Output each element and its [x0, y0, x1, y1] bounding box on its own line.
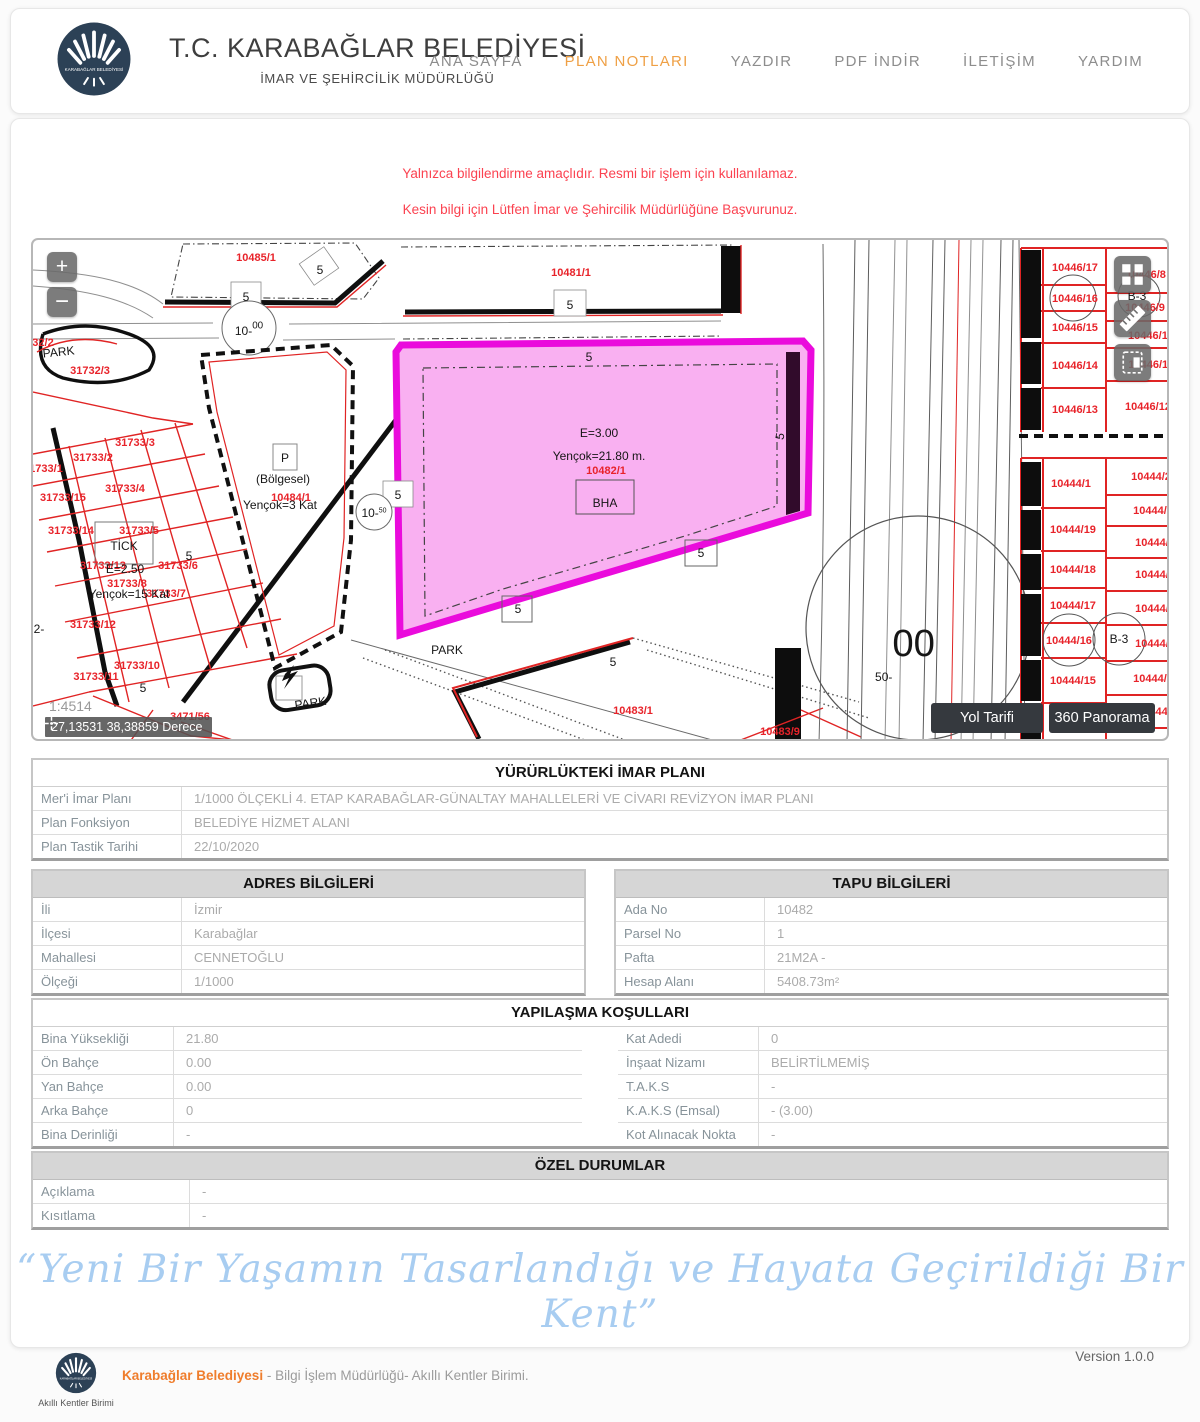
map-label: BHA: [593, 496, 618, 510]
table-row: Hesap Alanı5408.73m²: [616, 970, 1167, 993]
table-row: Ölçeği1/1000: [33, 970, 584, 993]
deed-table-title: TAPU BİLGİLERİ: [616, 871, 1167, 898]
map-label: 5: [186, 549, 193, 563]
zoning-conditions-right: Kat Adedi0 İnşaat NizamıBELİRTİLMEMİŞ T.…: [618, 1027, 1167, 1146]
map-legend-button[interactable]: [1114, 344, 1151, 381]
crosshair-icon: [45, 717, 58, 730]
map-label: 5: [243, 290, 250, 304]
footer-org-rest: - Bilgi İşlem Müdürlüğü- Akıllı Kentler …: [263, 1368, 529, 1383]
table-row: Arka Bahçe0: [33, 1099, 582, 1123]
map-parcel-label: 31733/3: [115, 437, 155, 449]
ruler-icon: [1114, 300, 1151, 337]
map-label: E=3.00: [580, 426, 619, 440]
map-zoom-out-button[interactable]: −: [47, 287, 77, 317]
map-parcel-label: 10446/13: [1052, 404, 1098, 416]
deed-table: TAPU BİLGİLERİ Ada No10482 Parsel No1 Pa…: [614, 869, 1169, 996]
map-parcel-label: 10444/17: [1050, 600, 1096, 612]
main-nav: ANA SAYFA PLAN NOTLARI YAZDIR PDF İNDİR …: [430, 53, 1143, 70]
table-row: Mer'i İmar Planı1/1000 ÖLÇEKLİ 4. ETAP K…: [33, 787, 1167, 811]
map-parcel-label: 10444/8: [1133, 673, 1169, 685]
table-row: Kısıtlama-: [33, 1204, 1167, 1227]
map-parcel-label: 10444/15: [1050, 675, 1096, 687]
map-label: 5: [586, 350, 593, 364]
map-label: TİCK: [110, 539, 137, 553]
map-label: Yençok=21.80 m.: [553, 449, 646, 463]
table-row: Açıklama-: [33, 1180, 1167, 1204]
page-subtitle: İMAR VE ŞEHİRCİLİK MÜDÜRLÜĞÜ: [169, 71, 586, 86]
table-row: Kat Adedi0: [618, 1027, 1167, 1051]
map-label: Yençok=3 Kat: [243, 498, 318, 512]
legend-panel-icon: [1114, 344, 1151, 381]
address-table-title: ADRES BİLGİLERİ: [33, 871, 584, 898]
special-conditions-table: ÖZEL DURUMLAR Açıklama- Kısıtlama-: [31, 1151, 1169, 1230]
table-row: Bina Derinliği-: [33, 1123, 582, 1146]
map-parcel-label: 10446/17: [1052, 262, 1098, 274]
warning-line-1: Yalnızca bilgilendirme amaçlıdır. Resmi …: [11, 166, 1189, 181]
table-row: Pafta21M2A -: [616, 946, 1167, 970]
map-parcel-label: 10444/19: [1050, 524, 1096, 536]
table-row: Bina Yüksekliği21.80: [33, 1027, 582, 1051]
table-row: Parsel No1: [616, 922, 1167, 946]
table-row: Kot Alınacak Nokta-: [618, 1123, 1167, 1146]
coordinate-bar: 27,13531 38,38859 Derece: [45, 717, 212, 737]
table-row: K.A.K.S (Emsal)- (3.00): [618, 1099, 1167, 1123]
table-row: İnşaat NizamıBELİRTİLMEMİŞ: [618, 1051, 1167, 1075]
map-parcel-label: 10485/1: [236, 252, 276, 264]
map-parcel-label: 10444/5: [1135, 569, 1169, 581]
map-parcel-label: 10446/14: [1052, 360, 1099, 372]
map-parcel-label: 10446/12: [1125, 401, 1169, 413]
map-label: P: [281, 451, 289, 465]
map-parcel-label: 31733/15: [40, 492, 86, 504]
map-parcel-label: 10444/6: [1135, 603, 1169, 615]
svg-text:KARABAĞLAR BELEDİYESİ: KARABAĞLAR BELEDİYESİ: [65, 66, 124, 72]
map-parcel-label: 10444/16: [1046, 635, 1092, 647]
map-parcel-label: 10444/4: [1135, 537, 1169, 549]
footer-logo: KARABAĞLAR BELEDİYESİ: [55, 1352, 97, 1394]
table-row: Ada No10482: [616, 898, 1167, 922]
map-parcel-label: 31733/2: [73, 452, 113, 464]
nav-item-yazdir[interactable]: YAZDIR: [731, 53, 793, 70]
map-label: E=2.50: [106, 562, 145, 576]
map-label: B-3: [1110, 632, 1129, 646]
nav-item-plan-notlari[interactable]: PLAN NOTLARI: [565, 53, 689, 70]
nav-item-pdf-indir[interactable]: PDF İNDİR: [834, 53, 921, 70]
plan-table-title: YÜRÜRLÜKTEKİ İMAR PLANI: [33, 760, 1167, 787]
map-label: 5: [317, 263, 324, 277]
city-slogan: “Yeni Bir Yaşamın Tasarlandığı ve Hayata…: [11, 1247, 1189, 1337]
map-label: 5: [567, 298, 574, 312]
table-row: Ön Bahçe0.00: [33, 1051, 582, 1075]
content-card: Yalnızca bilgilendirme amaçlıdır. Resmi …: [10, 118, 1190, 1348]
map-parcel-label: 31733/4: [105, 483, 146, 495]
map-parcel-label: 10446/15: [1052, 322, 1098, 334]
map-parcel-label: 1733/1: [33, 463, 63, 475]
map-label: 50-00: [875, 622, 935, 684]
map-measure-button[interactable]: [1114, 300, 1151, 337]
table-row: İlçesiKarabağlar: [33, 922, 584, 946]
map-parcel-label: 31733/10: [114, 660, 160, 672]
panorama-360-button[interactable]: 360 Panorama: [1049, 703, 1155, 733]
map-scale-label: 1:4514: [49, 698, 92, 714]
header-card: KARABAĞLAR BELEDİYESİ T.C. KARABAĞLAR BE…: [10, 8, 1190, 114]
map-parcel-label: 10444/2: [1131, 471, 1169, 483]
footer-unit-caption: Akıllı Kentler Birimi: [28, 1398, 124, 1408]
nav-item-ana-sayfa[interactable]: ANA SAYFA: [430, 53, 523, 70]
coordinate-readout: 27,13531 38,38859 Derece: [51, 720, 203, 734]
map-parcel-label: 10481/1: [551, 267, 591, 279]
map-label: 5: [140, 681, 147, 695]
map-parcel-label: 10483/9: [760, 726, 800, 738]
map-parcel-label: 10444/18: [1050, 564, 1096, 576]
zoning-conditions-left: Bina Yüksekliği21.80 Ön Bahçe0.00 Yan Ba…: [33, 1027, 582, 1146]
map-label: (Bölgesel): [256, 472, 310, 486]
zoning-conditions-table: YAPILAŞMA KOŞULLARI Bina Yüksekliği21.80…: [31, 998, 1169, 1149]
map-parcel-label: 31733/12: [70, 619, 116, 631]
table-row: Plan FonksiyonBELEDİYE HİZMET ALANI: [33, 811, 1167, 835]
nav-item-yardim[interactable]: YARDIM: [1078, 53, 1143, 70]
map-parcel-label: 10444/7: [1135, 638, 1169, 650]
special-conditions-title: ÖZEL DURUMLAR: [33, 1153, 1167, 1180]
map-label: 5: [610, 655, 617, 669]
zoning-map-canvas[interactable]: 10485/110481/132/231732/331733/331733/21…: [31, 238, 1169, 741]
map-layers-grid-button[interactable]: [1114, 256, 1151, 293]
map-parcel-label: 31732/3: [70, 365, 110, 377]
address-table: ADRES BİLGİLERİ İliİzmir İlçesiKarabağla…: [31, 869, 586, 996]
table-row: Plan Tastik Tarihi22/10/2020: [33, 835, 1167, 858]
municipality-logo: KARABAĞLAR BELEDİYESİ: [56, 21, 132, 97]
table-row: T.A.K.S-: [618, 1075, 1167, 1099]
map-parcel-label: 10446/16: [1052, 293, 1098, 305]
cadastral-map-drawing: 10485/110481/132/231732/331733/331733/21…: [33, 240, 1169, 741]
layers-grid-icon: [1114, 256, 1151, 293]
map-label: PARK: [431, 643, 463, 657]
version-label: Version 1.0.0: [1075, 1349, 1154, 1364]
svg-text:KARABAĞLAR BELEDİYESİ: KARABAĞLAR BELEDİYESİ: [60, 1378, 93, 1381]
table-row: MahallesiCENNETOĞLU: [33, 946, 584, 970]
map-label: 5: [515, 602, 522, 616]
table-row: İliİzmir: [33, 898, 584, 922]
map-zoom-in-button[interactable]: +: [47, 252, 77, 282]
map-label: PARK: [294, 694, 327, 712]
map-parcel-label: 31733/14: [48, 525, 95, 537]
footer-credit-line: Karabağlar Belediyesi - Bilgi İşlem Müdü…: [122, 1368, 529, 1383]
map-label: PARK: [42, 343, 75, 360]
map-label: Yençok=15 Kat: [89, 587, 170, 601]
footer-org-name[interactable]: Karabağlar Belediyesi: [122, 1368, 263, 1383]
map-label: 2-: [34, 622, 45, 636]
directions-button[interactable]: Yol Tarifi: [931, 703, 1043, 733]
map-parcel-label: 10444/3: [1133, 505, 1169, 517]
map-label: 5: [698, 546, 705, 560]
map-parcel-label: 10483/1: [613, 705, 653, 717]
map-parcel-label: 10482/1: [586, 465, 626, 477]
map-parcel-label: 31733/11: [73, 671, 118, 683]
nav-item-iletisim[interactable]: İLETİŞİM: [963, 53, 1036, 70]
plan-table: YÜRÜRLÜKTEKİ İMAR PLANI Mer'i İmar Planı…: [31, 758, 1169, 861]
warning-line-2: Kesin bilgi için Lütfen İmar ve Şehircil…: [11, 202, 1189, 217]
map-parcel-label: 10444/1: [1051, 478, 1091, 490]
table-row: Yan Bahçe0.00: [33, 1075, 582, 1099]
zoning-conditions-title: YAPILAŞMA KOŞULLARI: [33, 1000, 1167, 1027]
map-parcel-label: 31733/5: [119, 525, 159, 537]
map-label: 5: [395, 488, 402, 502]
